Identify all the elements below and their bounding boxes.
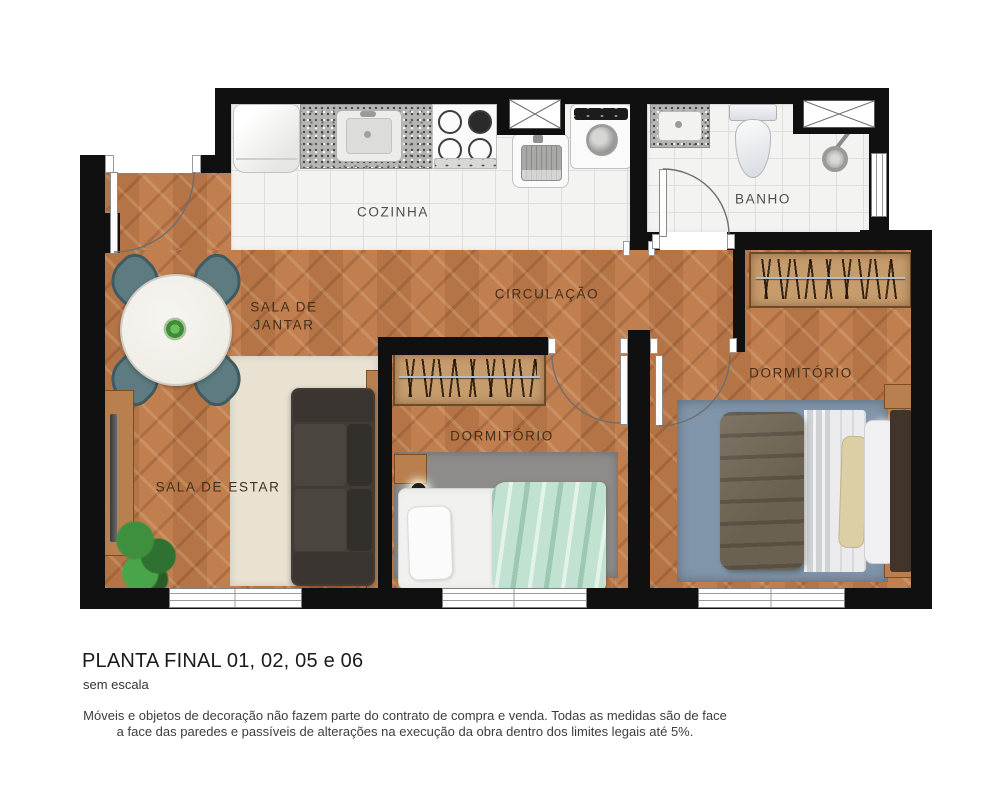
wall-corridor-bedroom1 bbox=[378, 337, 548, 355]
laundry-faucet bbox=[533, 135, 543, 143]
wardrobe-clothes bbox=[758, 259, 903, 299]
shower-head bbox=[822, 146, 848, 172]
plan-disclaimer: Móveis e objetos de decoração não fazem … bbox=[75, 708, 735, 739]
wood-floor-dining-entry bbox=[105, 173, 233, 250]
laundry-tub-basin bbox=[521, 145, 562, 181]
dining-label: SALA DE JANTAR bbox=[232, 298, 336, 333]
bedroom1-wardrobe bbox=[393, 352, 546, 406]
disclaimer-line: a face das paredes e passíveis de altera… bbox=[75, 724, 735, 740]
sofa-back-cushion bbox=[347, 424, 372, 486]
bedroom2-door-leaf bbox=[655, 355, 663, 426]
bedroom1-window bbox=[442, 588, 587, 608]
wall-bedroom1-left bbox=[378, 337, 392, 590]
stove-control-strip bbox=[434, 158, 497, 169]
bathroom-label: BANHO bbox=[735, 192, 791, 207]
x-cross-icon bbox=[510, 100, 560, 128]
bedroom2-wardrobe bbox=[749, 252, 912, 308]
sofa bbox=[291, 388, 375, 586]
wall-between-bedrooms bbox=[628, 330, 650, 590]
entry-door-post bbox=[192, 155, 201, 173]
table-plant bbox=[160, 314, 190, 344]
plan-scale-note: sem escala bbox=[83, 677, 149, 692]
bath-door-leaf bbox=[659, 169, 667, 237]
bedroom2-door-post bbox=[729, 338, 737, 353]
bathroom-window bbox=[871, 153, 887, 217]
bedroom1-label: DORMITÓRIO bbox=[450, 429, 554, 444]
bedroom1-bed bbox=[398, 482, 608, 590]
wall-entry-right bbox=[197, 155, 231, 173]
x-cross-icon bbox=[804, 101, 874, 127]
disclaimer-line: Móveis e objetos de decoração não fazem … bbox=[75, 708, 735, 724]
wall-below-bath bbox=[727, 232, 867, 250]
bed-blanket-khaki bbox=[720, 412, 804, 570]
wall-end-cap bbox=[623, 241, 630, 256]
bedroom2-window bbox=[698, 588, 845, 608]
shaft-x-box bbox=[509, 99, 561, 129]
bedroom2-door-post bbox=[650, 338, 658, 354]
bed-blanket-mint bbox=[492, 482, 606, 590]
wall-laundry-divider bbox=[630, 88, 647, 250]
kitchen-faucet bbox=[360, 111, 376, 117]
floor-plant bbox=[116, 520, 180, 592]
refrigerator-door-split bbox=[236, 158, 297, 160]
wall-nook bbox=[733, 250, 745, 352]
bedroom1-door-leaf bbox=[620, 355, 628, 425]
sofa-seat-cushion bbox=[294, 424, 346, 486]
sofa-seat-cushion bbox=[294, 489, 346, 551]
sofa-armrest bbox=[293, 390, 373, 422]
bedroom2-nightstand bbox=[884, 384, 912, 409]
refrigerator bbox=[233, 104, 300, 173]
bedroom1-door-post bbox=[620, 338, 628, 354]
wardrobe-clothes bbox=[402, 359, 537, 397]
entry-door-leaf bbox=[110, 172, 118, 254]
bedroom1-nightstand bbox=[394, 454, 427, 484]
washing-machine-drum bbox=[586, 124, 618, 156]
stove-burner bbox=[438, 110, 462, 134]
plan-title: PLANTA FINAL 01, 02, 05 e 06 bbox=[82, 650, 363, 673]
shaft-x-box bbox=[803, 100, 875, 128]
kitchen-sink-drain bbox=[364, 131, 371, 138]
bedroom1-door-post bbox=[548, 338, 556, 354]
living-label: SALA DE ESTAR bbox=[156, 480, 281, 495]
living-room-window bbox=[169, 588, 302, 608]
wall-right-lower bbox=[911, 230, 932, 609]
bedroom2-bed bbox=[718, 408, 912, 574]
sofa-back-cushion bbox=[347, 489, 372, 551]
floor-plan-page: COZINHA BANHO SALA DE JANTAR CIRCULAÇÃO … bbox=[0, 0, 1000, 795]
bathroom-sink-drain bbox=[675, 121, 682, 128]
bed-pillow bbox=[407, 505, 454, 580]
bed-sheet-fold bbox=[804, 410, 830, 572]
entry-door-post bbox=[105, 155, 114, 173]
wardrobe-rail bbox=[399, 376, 539, 378]
hallway-label: CIRCULAÇÃO bbox=[495, 287, 600, 302]
wardrobe-rail bbox=[756, 277, 905, 279]
bedroom2-label: DORMITÓRIO bbox=[749, 366, 853, 381]
stove-burner bbox=[468, 110, 492, 134]
kitchen-label: COZINHA bbox=[357, 205, 429, 220]
washing-machine-panel bbox=[574, 108, 628, 120]
sofa-armrest bbox=[293, 552, 373, 584]
bath-door-post bbox=[727, 234, 735, 249]
bed-headboard bbox=[890, 410, 912, 572]
